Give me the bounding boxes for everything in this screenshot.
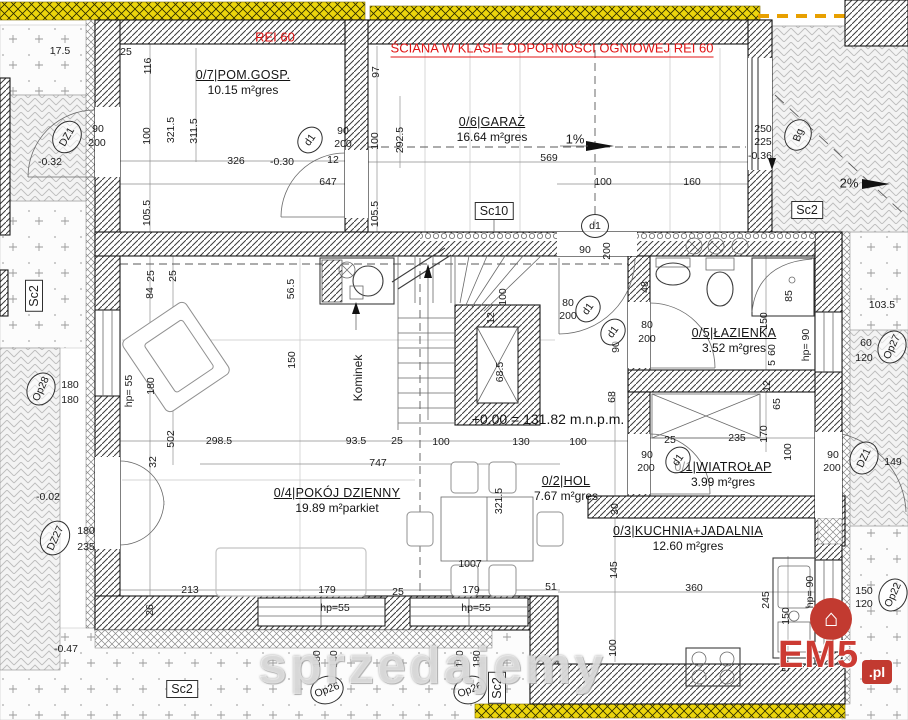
dimension-label: 245 [761, 591, 772, 609]
dimension-label: 97 [371, 66, 382, 78]
room-area: 7.67 m²gres [534, 489, 598, 503]
marker-sc2: Sc2 [166, 680, 198, 698]
dimension-label: 100 [142, 127, 153, 145]
dimension-label: 311.5 [189, 118, 200, 144]
room-title: 0/6|GARAŻ [457, 115, 528, 129]
dimension-label: 180 [61, 395, 79, 406]
dimension-label: 179 [462, 585, 480, 596]
marker-dz27: DZ27 [34, 516, 75, 561]
room-label: 0/7|POM.GOSP.10.15 m²gres [196, 68, 290, 97]
dimension-label: 130 [512, 437, 530, 448]
room-area: 10.15 m²gres [196, 83, 290, 97]
dimension-label: 292.5 [395, 127, 406, 153]
dimension-label: 17.5 [50, 46, 70, 57]
dimension-label: 100 [783, 443, 794, 461]
dimension-label: 25 [391, 436, 403, 447]
dimension-label: 150 [287, 351, 298, 369]
em5-logo[interactable]: ⌂ EM5 .pl [778, 598, 900, 694]
room-area: 19.89 m²parkiet [274, 501, 400, 515]
dimension-label: Kominek [352, 355, 364, 402]
dimension-label: 180 [77, 526, 95, 537]
room-label: 0/2|HOL7.67 m²gres [534, 474, 598, 503]
dimension-label: 12 [327, 155, 339, 166]
dimension-label: 68.5 [495, 362, 506, 382]
dimension-label: -0.32 [38, 157, 62, 168]
dimension-label: 12 [762, 380, 773, 392]
dimension-label: 647 [319, 177, 337, 188]
em5-tld-badge: .pl [862, 660, 892, 684]
dimension-label: 105.5 [142, 200, 153, 226]
dimension-label: 298.5 [206, 436, 232, 447]
dimension-label: 103.5 [869, 300, 895, 311]
dimension-label: 200 [602, 242, 613, 260]
dimension-label: hp=55 [461, 603, 491, 614]
dimension-label: -0.30 [270, 157, 294, 168]
dimension-label: 235 [77, 542, 95, 553]
dimension-label: 180 [61, 380, 79, 391]
marker-d1: d1 [292, 122, 328, 159]
room-title: 0/3|KUCHNIA+JADALNIA [613, 524, 763, 538]
dimension-label: 5 [767, 360, 778, 366]
labels-layer: 0/7|POM.GOSP.10.15 m²gres0/6|GARAŻ16.64 … [0, 0, 908, 720]
dimension-label: 235 [728, 433, 746, 444]
dimension-label: 90 [579, 245, 591, 256]
dimension-label: -0.02 [36, 492, 60, 503]
dimension-label: 321.5 [494, 488, 505, 514]
dimension-label: 60 [860, 338, 872, 349]
dimension-label: 100 [370, 132, 381, 150]
marker-sc10: Sc10 [475, 202, 514, 220]
dimension-label: 502 [166, 430, 177, 448]
marker-d1: d1 [570, 291, 606, 328]
dimension-label: 105.5 [370, 201, 381, 227]
fire-wall-note: ŚCIANA W KLASIE ODPORNOŚCI OGNIOWEJ REI … [391, 41, 714, 58]
dimension-label: 150 [759, 312, 770, 330]
dimension-label: 145 [609, 561, 620, 579]
dimension-label: 200 [823, 463, 841, 474]
dimension-label: 100 [594, 177, 612, 188]
marker-op27: Op27 [872, 326, 908, 369]
dimension-label: 250 [754, 124, 772, 135]
room-title: 0/7|POM.GOSP. [196, 68, 290, 82]
dimension-label: 60 [767, 344, 778, 356]
room-title: 0/4|POKÓJ DZIENNY [274, 486, 400, 500]
marker-op28: Op28 [21, 368, 61, 411]
dimension-label: 747 [369, 458, 387, 469]
em5-brand-text: EM5 [778, 634, 859, 677]
dimension-label: -0.47 [54, 644, 78, 655]
dimension-label: 200 [334, 139, 352, 150]
marker-dz1: DZ1 [844, 437, 884, 480]
room-label: 0/6|GARAŻ16.64 m²gres [457, 115, 528, 144]
fire-note-rei60: REI 60 [255, 30, 295, 45]
dimension-label: 56.5 [286, 279, 297, 299]
dimension-label: 225 [754, 137, 772, 148]
marker-bg: Bg [780, 115, 816, 154]
dimension-label: 80 [641, 320, 653, 331]
dimension-label: 84 [145, 287, 156, 299]
dimension-label: 100 [569, 437, 587, 448]
dimension-label: 12 [486, 312, 497, 324]
dimension-label: 149 [884, 457, 902, 468]
dimension-label: 200 [637, 463, 655, 474]
dimension-label: 30 [610, 503, 621, 515]
dimension-label: 48 [640, 281, 651, 293]
dimension-label: 170 [759, 425, 770, 443]
dimension-label: 25 [664, 435, 676, 446]
dimension-label: hp= 55 [124, 375, 135, 407]
level-datum: +0.00 = 131.82 m.n.p.m. [472, 411, 625, 427]
marker-sc2: Sc2 [791, 201, 823, 219]
dimension-label: -0.36 [748, 151, 772, 162]
dimension-label: 93.5 [346, 436, 366, 447]
dimension-label: 326 [227, 156, 245, 167]
dimension-label: 213 [181, 585, 199, 596]
dimension-label: 51 [545, 582, 557, 593]
dimension-label: 100 [498, 288, 509, 306]
dimension-label: 179 [318, 585, 336, 596]
marker-sc2: Sc2 [25, 280, 43, 312]
dimension-label: 120 [855, 353, 873, 364]
room-label: 0/5|ŁAZIENKA3.52 m²gres [692, 326, 777, 355]
dimension-label: 32 [148, 456, 159, 468]
room-area: 16.64 m²gres [457, 130, 528, 144]
dimension-label: 80 [562, 298, 574, 309]
dimension-label: 25 [120, 47, 132, 58]
dimension-label: 85 [784, 290, 795, 302]
dimension-label: 25 [168, 270, 179, 282]
dimension-label: 200 [638, 334, 656, 345]
dimension-label: 116 [143, 58, 154, 75]
room-area: 12.60 m²gres [613, 539, 763, 553]
marker-dz1: DZ1 [46, 115, 87, 158]
dimension-label: 90 [827, 450, 839, 461]
dimension-label: 180 [146, 377, 157, 395]
dimension-label: 26 [145, 604, 156, 616]
marker-d1: d1 [595, 314, 631, 351]
dimension-label: 68 [607, 391, 618, 403]
room-area: 3.52 m²gres [692, 341, 777, 355]
dimension-label: 569 [540, 153, 558, 164]
room-title: 0/2|HOL [534, 474, 598, 488]
dimension-label: 2% [840, 177, 859, 190]
dimension-label: 25 [392, 587, 404, 598]
dimension-label: 65 [772, 398, 783, 410]
dimension-label: 1% [566, 133, 585, 146]
dimension-label: 25 [146, 270, 157, 282]
dimension-label: 160 [683, 177, 701, 188]
room-area: 3.99 m²gres [674, 475, 771, 489]
dimension-label: 90 [92, 124, 104, 135]
dimension-label: 321.5 [166, 117, 177, 143]
dimension-label: hp= 90 [801, 329, 812, 361]
dimension-label: 90 [337, 126, 349, 137]
dimension-label: 200 [88, 138, 106, 149]
dimension-label: 1007 [458, 559, 481, 570]
dimension-label: 100 [608, 639, 619, 657]
dimension-label: 360 [685, 583, 703, 594]
room-label: 0/3|KUCHNIA+JADALNIA12.60 m²gres [613, 524, 763, 553]
dimension-label: 100 [432, 437, 450, 448]
watermark: sprzedajemy [258, 636, 606, 696]
dimension-label: 150 [855, 586, 873, 597]
marker-d1: d1 [581, 214, 609, 238]
dimension-label: 90 [641, 450, 653, 461]
floor-plan-page: 0/7|POM.GOSP.10.15 m²gres0/6|GARAŻ16.64 … [0, 0, 908, 720]
room-label: 0/4|POKÓJ DZIENNY19.89 m²parkiet [274, 486, 400, 515]
dimension-label: hp=55 [320, 603, 350, 614]
